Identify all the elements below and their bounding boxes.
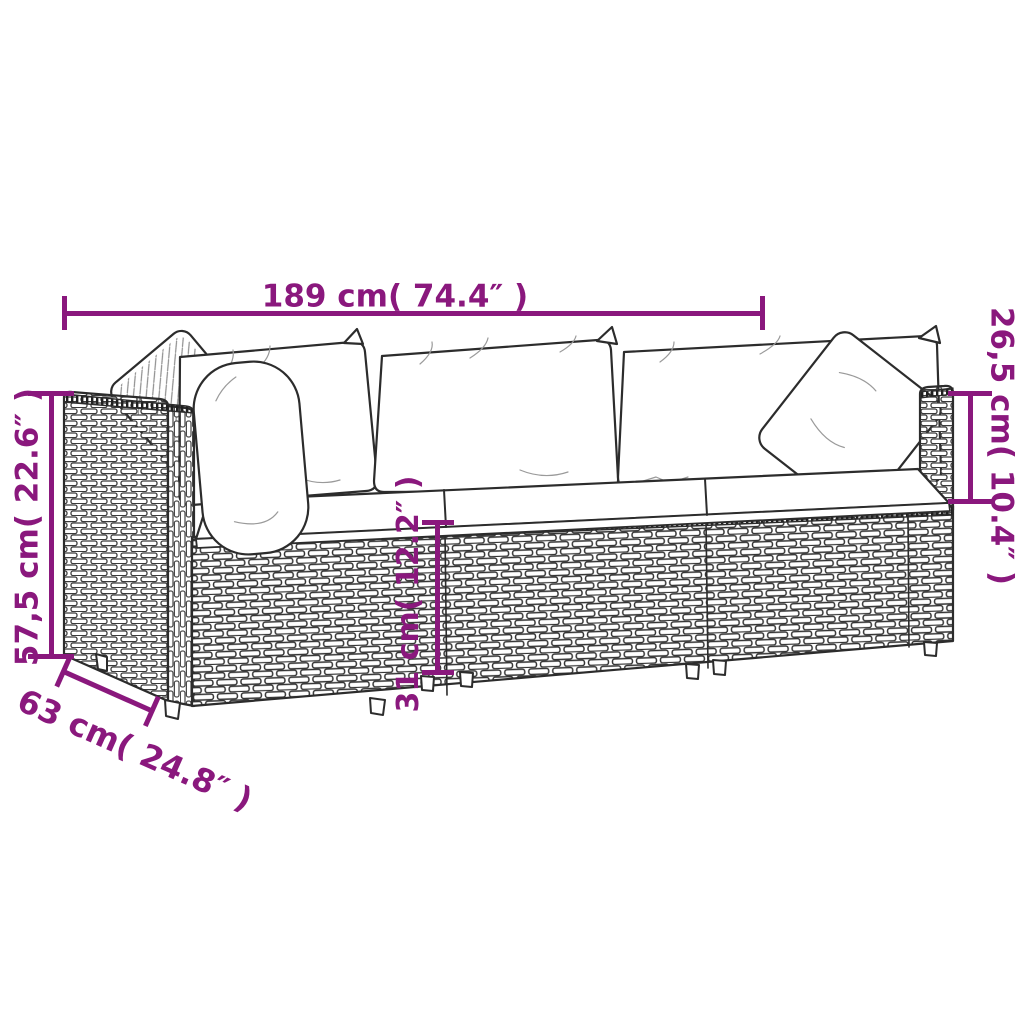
left-armrest-inner-face <box>168 406 194 706</box>
dimension-line-total-height <box>49 391 54 659</box>
dimension-tick <box>422 520 454 525</box>
dimension-label-armrest-height: 26,5 cm( 10.4″ ) <box>986 307 1017 585</box>
leg <box>713 660 726 675</box>
leg <box>165 700 180 719</box>
dimension-line-armrest-height <box>968 391 973 504</box>
leg <box>460 672 473 687</box>
leg <box>370 698 385 715</box>
leg <box>96 654 107 671</box>
pillow-fold-2 <box>597 327 617 344</box>
front-pillow-left <box>190 358 312 559</box>
dimension-tick <box>760 296 765 330</box>
dimension-tick <box>422 670 454 675</box>
pillow-fold-1 <box>344 329 363 344</box>
left-armrest-outer-face <box>64 392 168 701</box>
leg <box>924 642 937 656</box>
product-dimension-diagram: 189 cm( 74.4″ ) 57,5 cm( 22.6″ ) 26,5 cm… <box>0 0 1024 1024</box>
dimension-label-seat-height: 31 cm( 12.2″ ) <box>394 476 424 713</box>
dimension-label-total-height: 57,5 cm( 22.6″ ) <box>13 388 44 666</box>
sofa-line-art <box>64 326 953 719</box>
sofa-illustration <box>0 0 1024 1024</box>
left-armrest <box>64 392 194 706</box>
dimension-line-seat-height <box>435 520 440 675</box>
dimension-tick <box>62 296 67 330</box>
leg <box>686 664 699 679</box>
dimension-label-width: 189 cm( 74.4″ ) <box>262 281 528 312</box>
back-pillow-2 <box>374 340 618 492</box>
